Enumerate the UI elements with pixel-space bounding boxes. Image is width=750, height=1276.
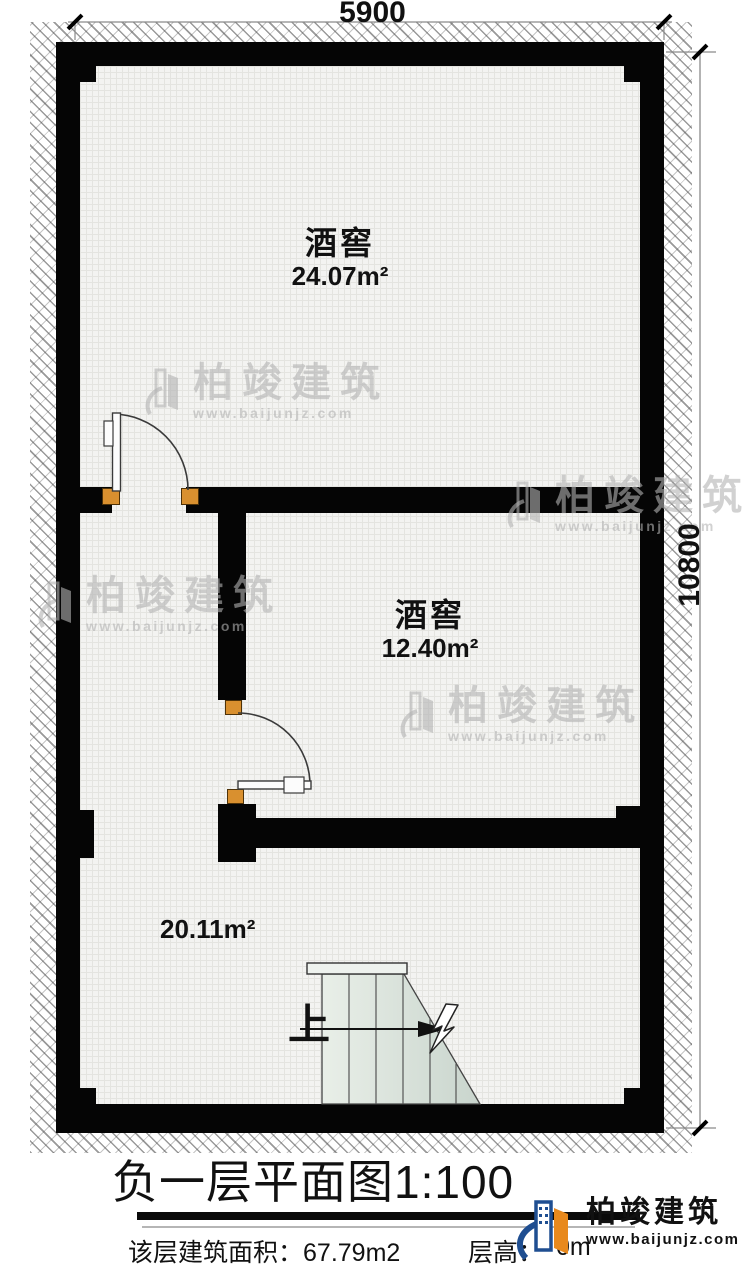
wall-segment bbox=[56, 42, 80, 1133]
room-name: 酒窖 bbox=[240, 226, 440, 261]
room-area: 24.07m² bbox=[240, 261, 440, 292]
plan-title: 负一层平面图 bbox=[112, 1156, 394, 1208]
wall-segment bbox=[186, 487, 640, 513]
dimension-label-right: 10800 bbox=[673, 523, 707, 606]
brand-logo: 柏竣建筑 www.baijunjz.com bbox=[512, 1196, 739, 1266]
wall-segment bbox=[640, 42, 664, 1133]
wall-pillar bbox=[616, 806, 640, 818]
floor-grid bbox=[80, 66, 640, 1104]
room-area: 12.40m² bbox=[330, 633, 530, 664]
page-title: 负一层平面图1:100 bbox=[112, 1146, 514, 1212]
door-stop bbox=[181, 488, 199, 505]
floor-area-label: 该层建筑面积： bbox=[128, 1239, 303, 1267]
wall-pillar bbox=[80, 66, 96, 82]
dimension-tick bbox=[693, 45, 707, 59]
plan-scale: 1:100 bbox=[394, 1156, 514, 1208]
brand-logo-text: 柏竣建筑 bbox=[586, 1196, 739, 1231]
wall-pillar bbox=[624, 1088, 640, 1104]
wall-segment bbox=[56, 1104, 664, 1133]
wall-segment bbox=[250, 818, 640, 848]
brand-logo-icon bbox=[512, 1196, 582, 1266]
stairs-up-label: 上 bbox=[288, 1004, 330, 1046]
wall-pillar bbox=[80, 810, 94, 858]
room-name: 酒窖 bbox=[330, 598, 530, 633]
dimension-label-top: 5900 bbox=[280, 0, 465, 30]
wall-pillar bbox=[624, 66, 640, 82]
floor-area-value: 67.79m2 bbox=[303, 1239, 400, 1267]
wall-segment bbox=[218, 508, 246, 700]
wall-segment bbox=[56, 42, 664, 66]
door-stop bbox=[102, 488, 120, 505]
wall-pillar bbox=[80, 1088, 96, 1104]
room-label-wine-cellar-2: 酒窖 12.40m² bbox=[330, 598, 530, 664]
door-stop bbox=[227, 789, 244, 804]
door-stop bbox=[225, 700, 242, 715]
dimension-tick bbox=[693, 1121, 707, 1135]
brand-logo-url: www.baijunjz.com bbox=[586, 1231, 739, 1248]
room-label-wine-cellar-1: 酒窖 24.07m² bbox=[240, 226, 440, 292]
room-area: 20.11m² bbox=[160, 914, 255, 945]
floor-area-text: 该层建筑面积：67.79m2 bbox=[128, 1233, 400, 1269]
